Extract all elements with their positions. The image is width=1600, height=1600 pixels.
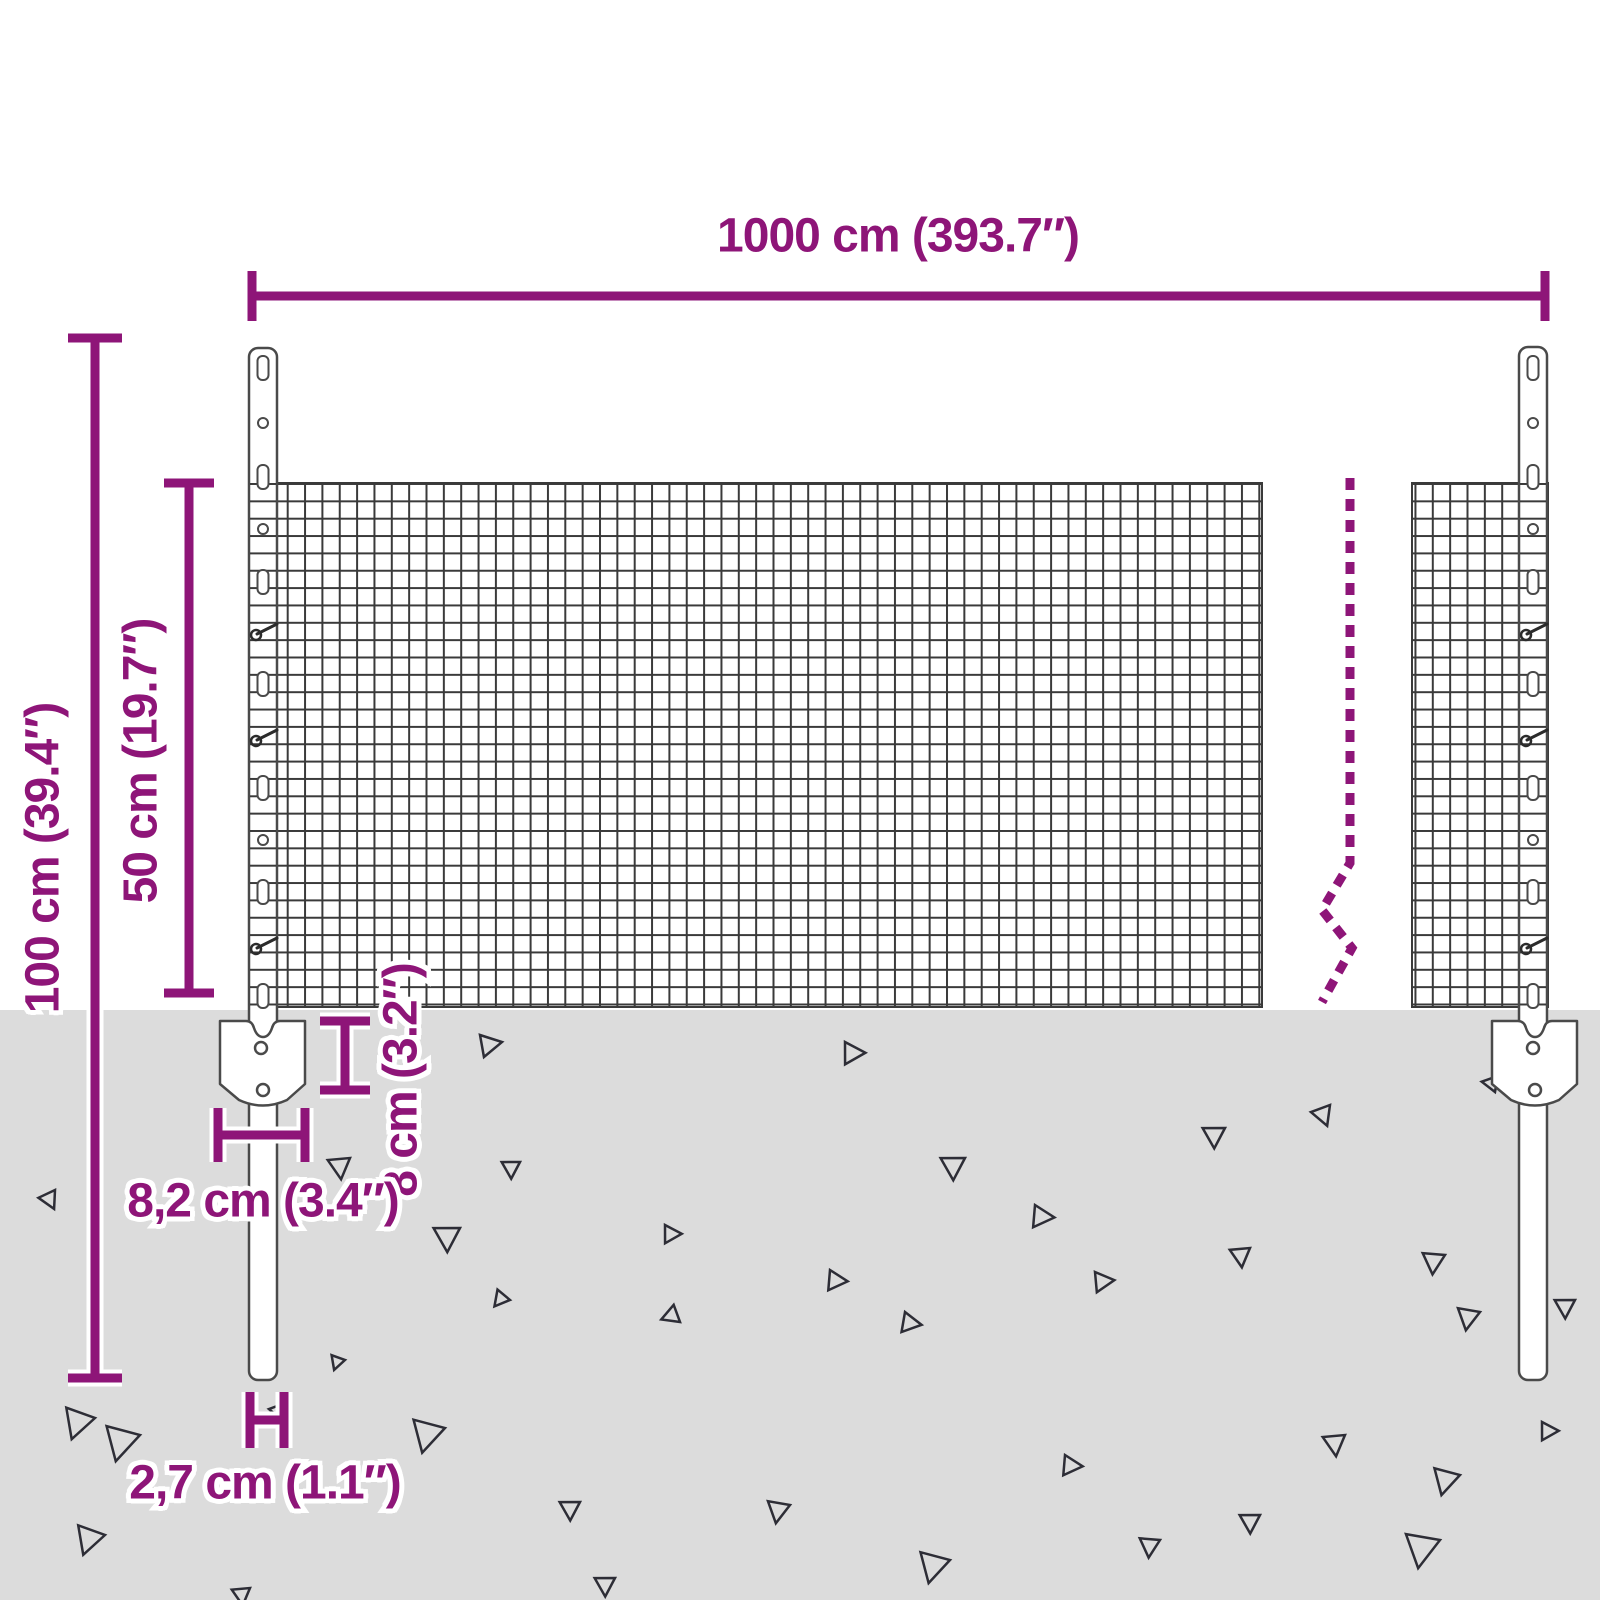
break-zigzag-dashed-line: [1322, 478, 1352, 1002]
post-slot: [1528, 776, 1539, 800]
post-slot: [258, 672, 269, 696]
mesh-panel-main: [252, 483, 1262, 1007]
label-post-height: 100 cm (39.4″): [16, 703, 71, 1014]
post-slot: [258, 356, 269, 380]
post-slot: [1528, 880, 1539, 904]
post-hole: [1528, 835, 1538, 845]
label-anchor-width: 8,2 cm (3.4″): [127, 1174, 398, 1229]
post-slot: [1528, 984, 1539, 1008]
post-slot: [1528, 356, 1539, 380]
post-hole: [258, 418, 268, 428]
post-slot: [1528, 672, 1539, 696]
label-total-width: 1000 cm (393.7″): [717, 209, 1079, 264]
dimension-line-mesh-height: [164, 483, 214, 993]
dimension-line-total-width: [252, 271, 1545, 321]
post-slot: [258, 465, 269, 489]
post-slot: [258, 776, 269, 800]
label-post-width: 2,7 cm (1.1″): [129, 1456, 400, 1511]
post-hole: [258, 835, 268, 845]
post-slot: [258, 984, 269, 1008]
post-slot: [1528, 570, 1539, 594]
fence-dimension-diagram: 1000 cm (393.7″) 100 cm (39.4″) 50 cm (1…: [0, 0, 1600, 1600]
post-slot: [1528, 465, 1539, 489]
label-mesh-height: 50 cm (19.7″): [114, 619, 169, 904]
post-slot: [258, 880, 269, 904]
post-hole: [1528, 524, 1538, 534]
label-anchor-depth: 8 cm (3.2″): [374, 963, 429, 1196]
post-hole: [258, 524, 268, 534]
post-slot: [258, 570, 269, 594]
post-hole: [1528, 418, 1538, 428]
